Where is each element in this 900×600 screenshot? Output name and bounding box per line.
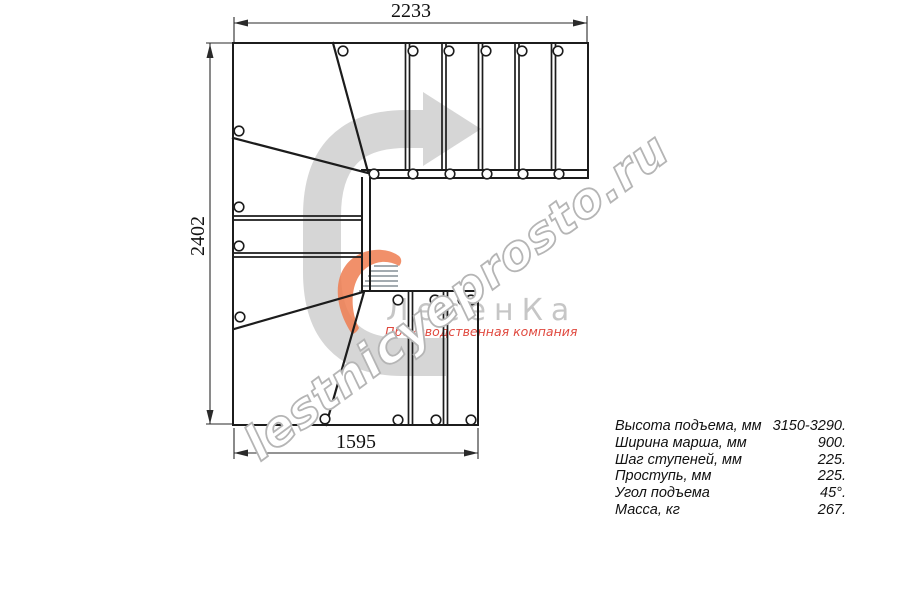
dimension-left: 2402 bbox=[187, 43, 232, 424]
dimension-arrow bbox=[234, 20, 248, 27]
bolt-hole bbox=[431, 415, 441, 425]
bolt-hole bbox=[408, 169, 418, 179]
bolt-hole bbox=[234, 241, 244, 251]
spec-row-mass: Масса, кг 267. bbox=[615, 502, 846, 519]
direction-arrow-head bbox=[423, 92, 481, 166]
dimension-arrow bbox=[207, 410, 214, 424]
bolt-hole bbox=[338, 46, 348, 56]
dimension-left-value: 2402 bbox=[187, 216, 209, 256]
dimension-top: 2233 bbox=[234, 0, 587, 42]
spec-label: Ширина марша, мм bbox=[615, 435, 747, 452]
spec-label: Высота подъема, мм bbox=[615, 418, 762, 435]
spec-value: 45°. bbox=[820, 485, 846, 502]
stair-plan-screenshot: ЛесенКа Производственная компания bbox=[0, 0, 900, 600]
spec-row-step-pitch: Шаг ступеней, мм 225. bbox=[615, 452, 846, 469]
bolt-hole bbox=[481, 46, 491, 56]
dimension-bottom-value: 1595 bbox=[336, 431, 376, 453]
bolt-hole bbox=[517, 46, 527, 56]
spec-value: 225. bbox=[818, 452, 846, 469]
spec-row-tread: Проступь, мм 225. bbox=[615, 468, 846, 485]
bolt-hole bbox=[554, 169, 564, 179]
bolt-hole bbox=[466, 415, 476, 425]
spec-value: 900. bbox=[818, 435, 846, 452]
bolt-hole bbox=[234, 202, 244, 212]
logo-steps-icon bbox=[359, 266, 398, 291]
dimension-arrow bbox=[573, 20, 587, 27]
bolt-hole bbox=[518, 169, 528, 179]
spec-label: Проступь, мм bbox=[615, 468, 711, 485]
spec-value: 267. bbox=[818, 502, 846, 519]
dimension-arrow bbox=[234, 450, 248, 457]
spec-row-flight-width: Ширина марша, мм 900. bbox=[615, 435, 846, 452]
dimension-top-value: 2233 bbox=[391, 0, 431, 22]
bolt-hole bbox=[369, 169, 379, 179]
bolt-hole bbox=[408, 46, 418, 56]
bolt-hole bbox=[445, 169, 455, 179]
bolt-hole bbox=[393, 415, 403, 425]
bolt-hole bbox=[444, 46, 454, 56]
spec-label: Угол подъема bbox=[615, 485, 710, 502]
spec-label: Шаг ступеней, мм bbox=[615, 452, 742, 469]
left-flight-treads bbox=[233, 216, 362, 257]
bolt-hole bbox=[235, 312, 245, 322]
dimension-arrow bbox=[207, 44, 214, 58]
dimension-arrow bbox=[464, 450, 478, 457]
spec-row-height: Высота подъема, мм 3150-3290. bbox=[615, 418, 846, 435]
bolt-hole bbox=[234, 126, 244, 136]
spec-label: Масса, кг bbox=[615, 502, 680, 519]
watermark-text: lestnicyeprosto.ru bbox=[234, 121, 680, 471]
spec-table: Высота подъема, мм 3150-3290. Ширина мар… bbox=[615, 418, 846, 519]
spec-value: 225. bbox=[818, 468, 846, 485]
bolt-hole bbox=[482, 169, 492, 179]
bolt-hole bbox=[553, 46, 563, 56]
spec-value: 3150-3290. bbox=[773, 418, 846, 435]
spec-row-angle: Угол подъема 45°. bbox=[615, 485, 846, 502]
